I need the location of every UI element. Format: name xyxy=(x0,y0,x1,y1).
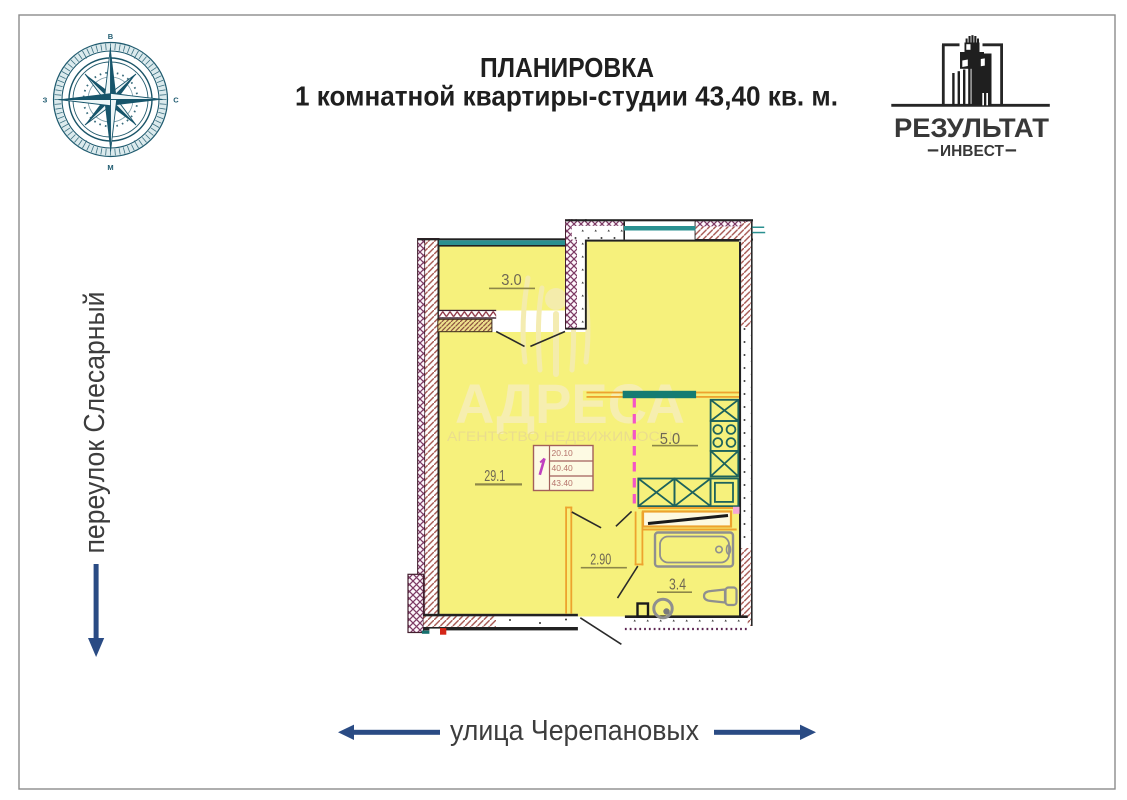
svg-text:ИНВЕСТ: ИНВЕСТ xyxy=(940,143,1005,160)
svg-text:ПЛАНИРОВКА: ПЛАНИРОВКА xyxy=(480,52,654,83)
svg-text:РЕЗУЛЬТАТ: РЕЗУЛЬТАТ xyxy=(894,113,1050,143)
svg-text:1 комнатной квартиры-студии 43: 1 комнатной квартиры-студии 43,40 кв. м. xyxy=(295,81,838,112)
svg-text:43.40: 43.40 xyxy=(552,478,574,488)
svg-text:3.0: 3.0 xyxy=(501,272,522,289)
svg-text:улица Черепановых: улица Черепановых xyxy=(450,715,699,747)
svg-text:АДРЕСА: АДРЕСА xyxy=(455,372,685,435)
svg-text:М: М xyxy=(107,163,113,172)
svg-text:АГЕНТСТВО НЕДВИЖИМОСТИ: АГЕНТСТВО НЕДВИЖИМОСТИ xyxy=(447,429,680,444)
svg-text:3.4: 3.4 xyxy=(669,577,686,594)
svg-text:переулок Слесарный: переулок Слесарный xyxy=(79,292,111,554)
svg-text:С: С xyxy=(173,96,179,105)
svg-text:2.90: 2.90 xyxy=(590,552,611,569)
svg-text:В: В xyxy=(108,32,114,41)
svg-text:20.10: 20.10 xyxy=(552,448,574,458)
svg-text:29.1: 29.1 xyxy=(484,468,505,485)
svg-text:З: З xyxy=(43,96,48,105)
svg-text:40.40: 40.40 xyxy=(552,463,574,473)
